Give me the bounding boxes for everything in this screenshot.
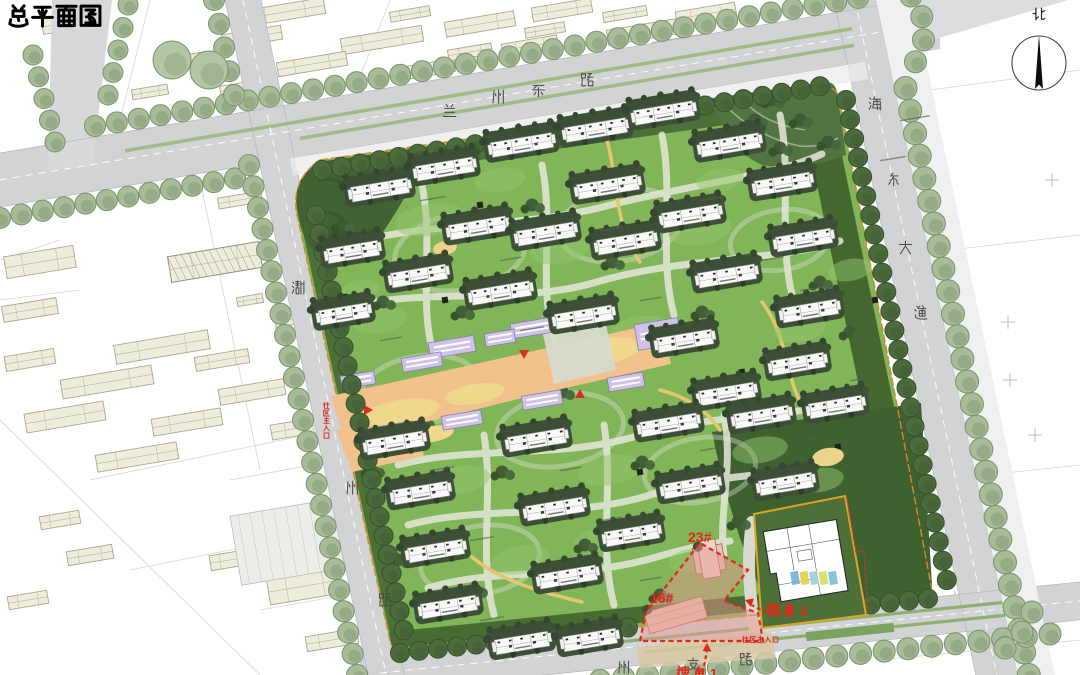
svg-text:2: 2 — [800, 604, 807, 619]
svg-text:1: 1 — [710, 666, 717, 675]
svg-text:23#: 23# — [688, 529, 712, 545]
svg-text:16#: 16# — [650, 590, 674, 606]
